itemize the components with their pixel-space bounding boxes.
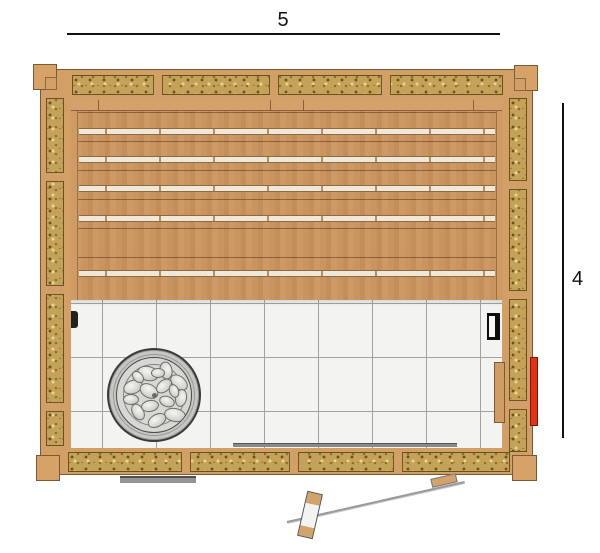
bench-side-board (71, 111, 78, 300)
bench-board-joint (98, 100, 99, 111)
right-wall-blocking (509, 290, 527, 300)
exterior-step (120, 476, 196, 483)
left-wall-vent (71, 311, 78, 328)
dimension-height-label: 4 (572, 269, 583, 289)
left-wall-insulation (46, 98, 64, 446)
right-wall-insulation (509, 98, 527, 452)
sauna-floor-plan: 5 4 (0, 0, 600, 553)
top-wall-insulation (72, 75, 503, 95)
right-wall-blocking (509, 400, 527, 410)
bench-board-joint (473, 100, 474, 111)
bottom-wall-stud (181, 452, 191, 472)
heater-stone (123, 394, 139, 405)
right-wall-recess-panel (489, 316, 495, 337)
exterior-red-marker (530, 357, 538, 426)
door-threshold (233, 443, 457, 447)
dimension-width-line (67, 33, 500, 35)
top-wall-stud (153, 75, 163, 95)
right-wall-recess (487, 313, 500, 340)
corner-post-bottom-left (36, 455, 60, 481)
corner-post-top-left-notch (45, 77, 57, 90)
heater-stone-bed (116, 357, 192, 433)
bottom-wall-stud (289, 452, 299, 472)
bench-board-gap (79, 128, 495, 135)
right-wall-wood-strip (494, 362, 505, 423)
dimension-width-label: 5 (277, 10, 288, 30)
top-wall-stud (381, 75, 391, 95)
corner-post-top-right-notch (514, 78, 526, 91)
bench-edge-board (71, 100, 502, 111)
left-wall-blocking (46, 285, 64, 295)
bench-board-joint (270, 100, 271, 111)
right-wall-blocking (509, 180, 527, 190)
left-wall-blocking (46, 172, 64, 182)
corner-post-bottom-right (512, 455, 537, 481)
dimension-height-line (562, 103, 564, 438)
bench-board-gap (79, 156, 495, 163)
heater-center-mark (152, 393, 157, 398)
bottom-wall-stud (393, 452, 403, 472)
bench-board-gap (79, 215, 495, 222)
top-wall-stud (269, 75, 279, 95)
bench-board-gap (79, 185, 495, 192)
bench-board-joint (303, 100, 304, 111)
bench-side-board (496, 111, 503, 300)
heater-stone (151, 368, 165, 378)
stone-heater (107, 348, 201, 442)
left-wall-blocking (46, 402, 64, 412)
bench-board-gap (79, 270, 495, 277)
